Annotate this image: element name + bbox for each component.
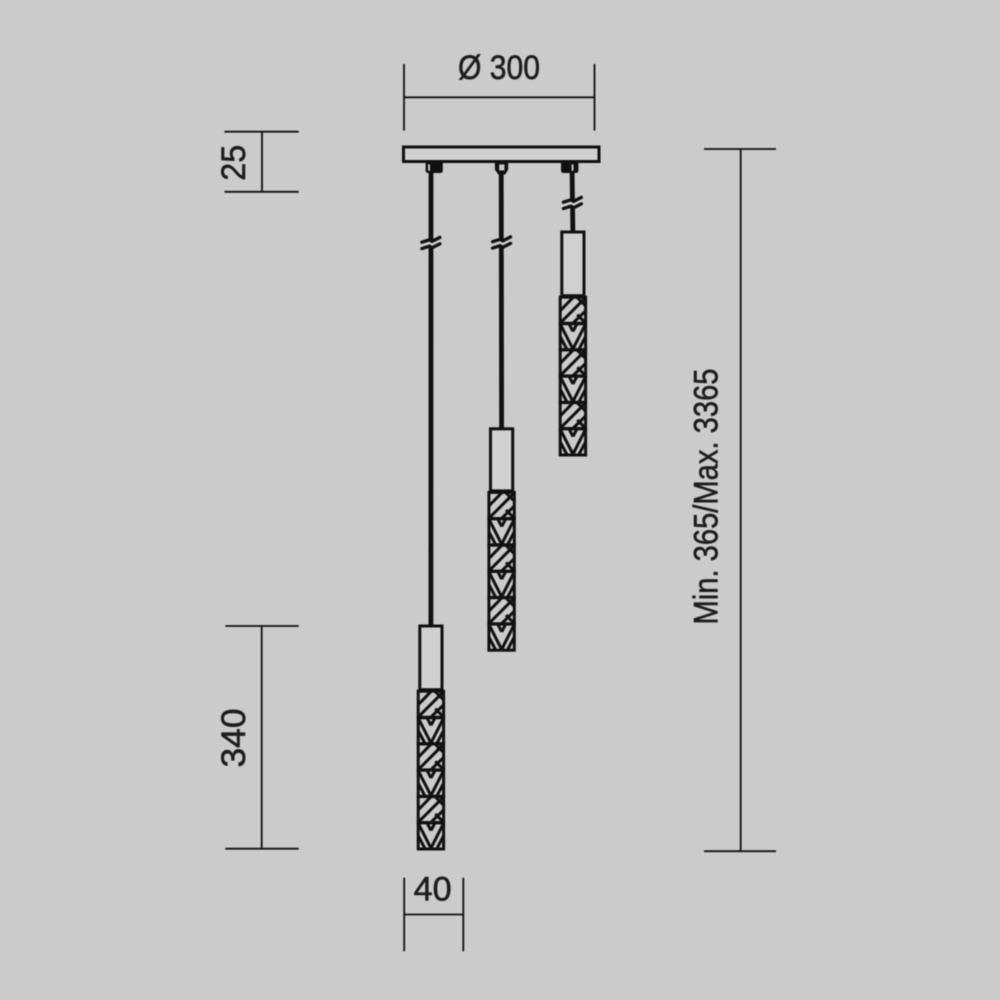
svg-text:Min. 365/Max. 3365: Min. 365/Max. 3365 [688,369,726,625]
svg-text:Ø 300: Ø 300 [458,49,540,87]
svg-text:25: 25 [215,145,253,181]
svg-text:40: 40 [414,871,452,909]
svg-text:340: 340 [215,709,253,768]
